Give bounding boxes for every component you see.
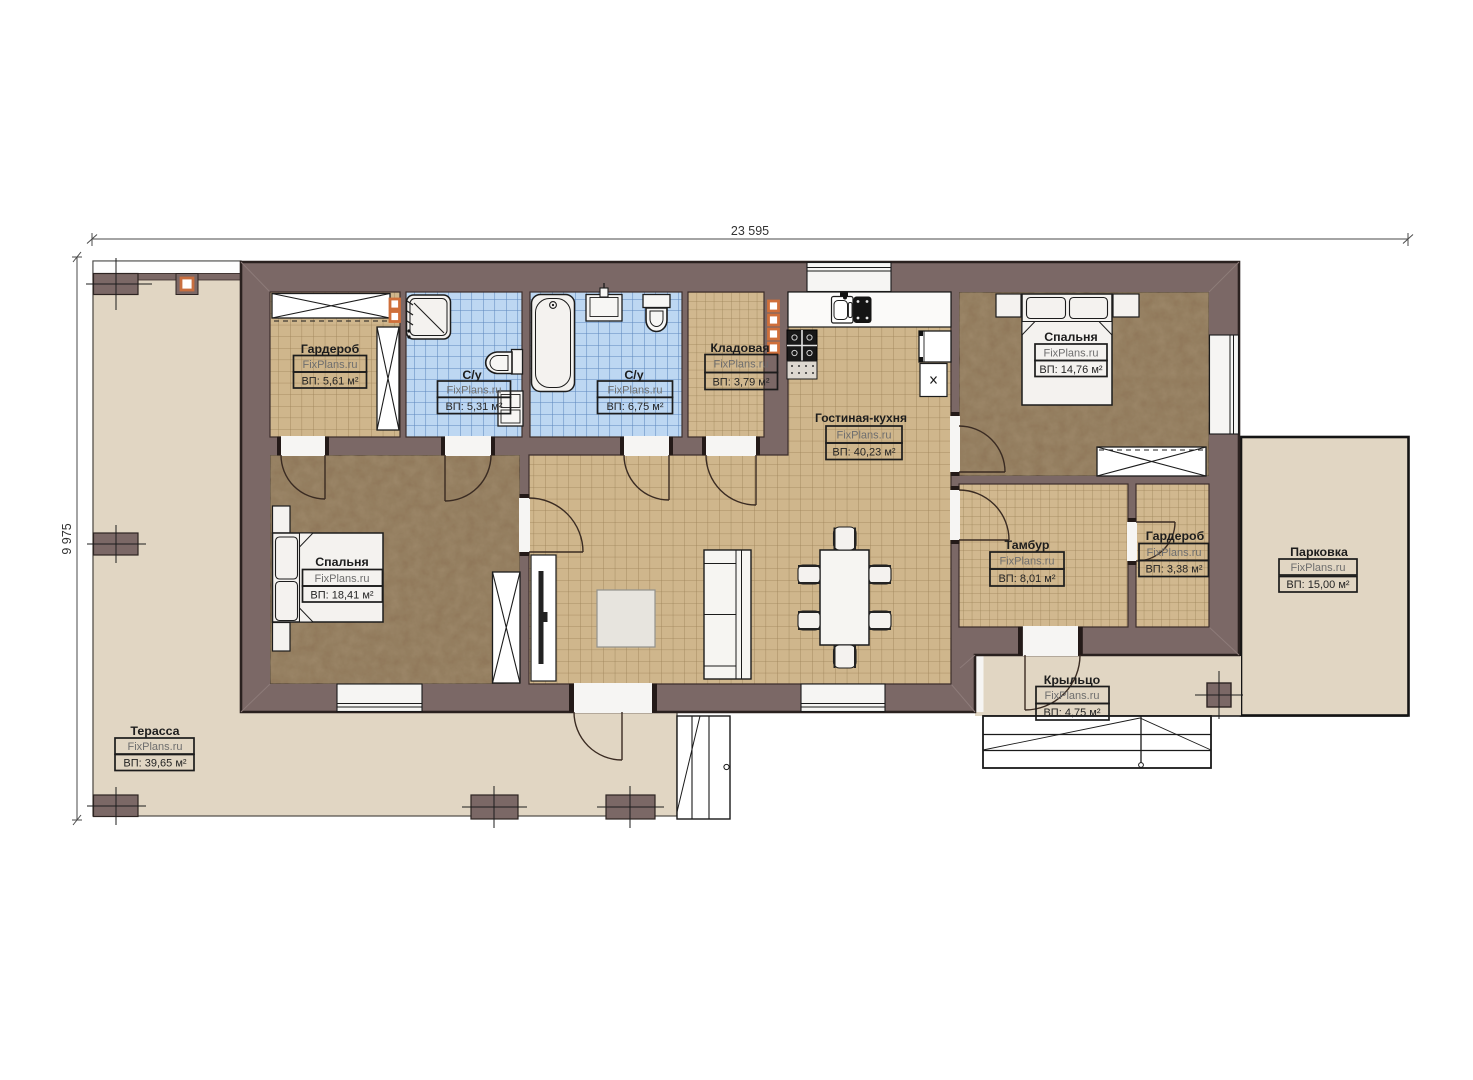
svg-text:FixPlans.ru: FixPlans.ru — [999, 556, 1054, 568]
svg-text:FixPlans.ru: FixPlans.ru — [1146, 547, 1201, 559]
svg-text:ВП: 40,23 м²: ВП: 40,23 м² — [832, 447, 896, 459]
svg-text:FixPlans.ru: FixPlans.ru — [713, 359, 768, 371]
svg-text:Спальня: Спальня — [315, 555, 369, 569]
svg-text:FixPlans.ru: FixPlans.ru — [1290, 562, 1345, 574]
svg-text:ВП: 5,31 м²: ВП: 5,31 м² — [445, 401, 502, 413]
svg-text:ВП: 5,61 м²: ВП: 5,61 м² — [301, 376, 358, 388]
svg-text:ВП: 15,00 м²: ВП: 15,00 м² — [1286, 579, 1350, 591]
svg-text:FixPlans.ru: FixPlans.ru — [836, 430, 891, 442]
svg-text:ВП: 18,41 м²: ВП: 18,41 м² — [310, 590, 374, 602]
svg-text:Крыльцо: Крыльцо — [1044, 673, 1101, 687]
svg-text:FixPlans.ru: FixPlans.ru — [302, 359, 357, 371]
svg-text:ВП: 8,01 м²: ВП: 8,01 м² — [998, 573, 1055, 585]
svg-text:ВП: 6,75 м²: ВП: 6,75 м² — [606, 401, 663, 413]
svg-text:Гардероб: Гардероб — [301, 342, 360, 356]
svg-text:FixPlans.ru: FixPlans.ru — [127, 741, 182, 753]
svg-text:FixPlans.ru: FixPlans.ru — [1043, 348, 1098, 360]
svg-text:FixPlans.ru: FixPlans.ru — [607, 385, 662, 397]
svg-text:ВП: 39,65 м²: ВП: 39,65 м² — [123, 758, 187, 770]
svg-text:FixPlans.ru: FixPlans.ru — [1044, 690, 1099, 702]
svg-text:Гостиная-кухня: Гостиная-кухня — [815, 411, 907, 425]
svg-text:Кладовая: Кладовая — [710, 341, 769, 355]
svg-text:Спальня: Спальня — [1044, 330, 1098, 344]
svg-text:ВП: 3,79 м²: ВП: 3,79 м² — [712, 377, 769, 389]
svg-text:Парковка: Парковка — [1290, 545, 1348, 559]
svg-text:С/у: С/у — [624, 368, 643, 382]
svg-text:ВП: 14,76 м²: ВП: 14,76 м² — [1039, 364, 1103, 376]
svg-text:Тамбур: Тамбур — [1005, 538, 1050, 552]
svg-text:9 975: 9 975 — [60, 523, 74, 554]
svg-text:ВП: 3,38 м²: ВП: 3,38 м² — [1145, 564, 1202, 576]
svg-text:FixPlans.ru: FixPlans.ru — [314, 573, 369, 585]
svg-text:ВП: 4,75 м²: ВП: 4,75 м² — [1043, 707, 1100, 719]
svg-text:С/у: С/у — [462, 368, 481, 382]
svg-text:23 595: 23 595 — [731, 224, 769, 238]
svg-text:Гардероб: Гардероб — [1146, 529, 1205, 543]
svg-text:FixPlans.ru: FixPlans.ru — [446, 385, 501, 397]
svg-text:Терасса: Терасса — [130, 724, 179, 738]
